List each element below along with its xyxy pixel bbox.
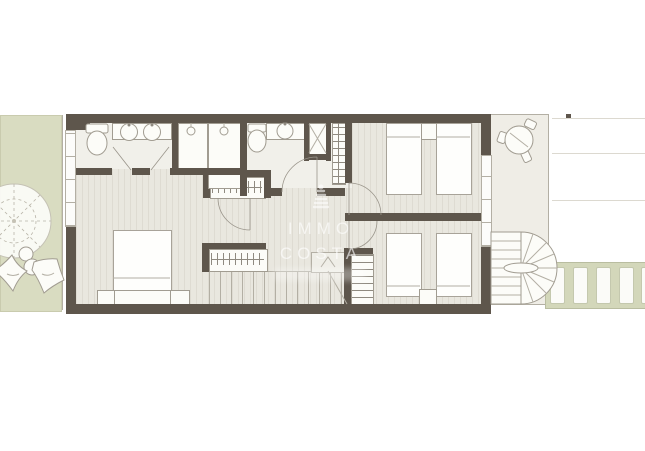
spiral-staircase bbox=[491, 232, 557, 304]
sink-basin bbox=[121, 123, 294, 141]
watermark-blur-bar bbox=[274, 268, 366, 281]
outdoor-table-with-chairs bbox=[497, 118, 538, 163]
watermark-line1: IMMO bbox=[271, 219, 371, 239]
shower-tray-x-lines bbox=[309, 124, 326, 153]
floor-plan: IMMO COSTA bbox=[0, 0, 645, 451]
watermark-line2: COSTA bbox=[271, 244, 371, 264]
toilet bbox=[86, 124, 108, 155]
shower-head bbox=[187, 123, 228, 135]
toilet bbox=[248, 124, 266, 152]
lighthouse-icon bbox=[314, 185, 328, 208]
